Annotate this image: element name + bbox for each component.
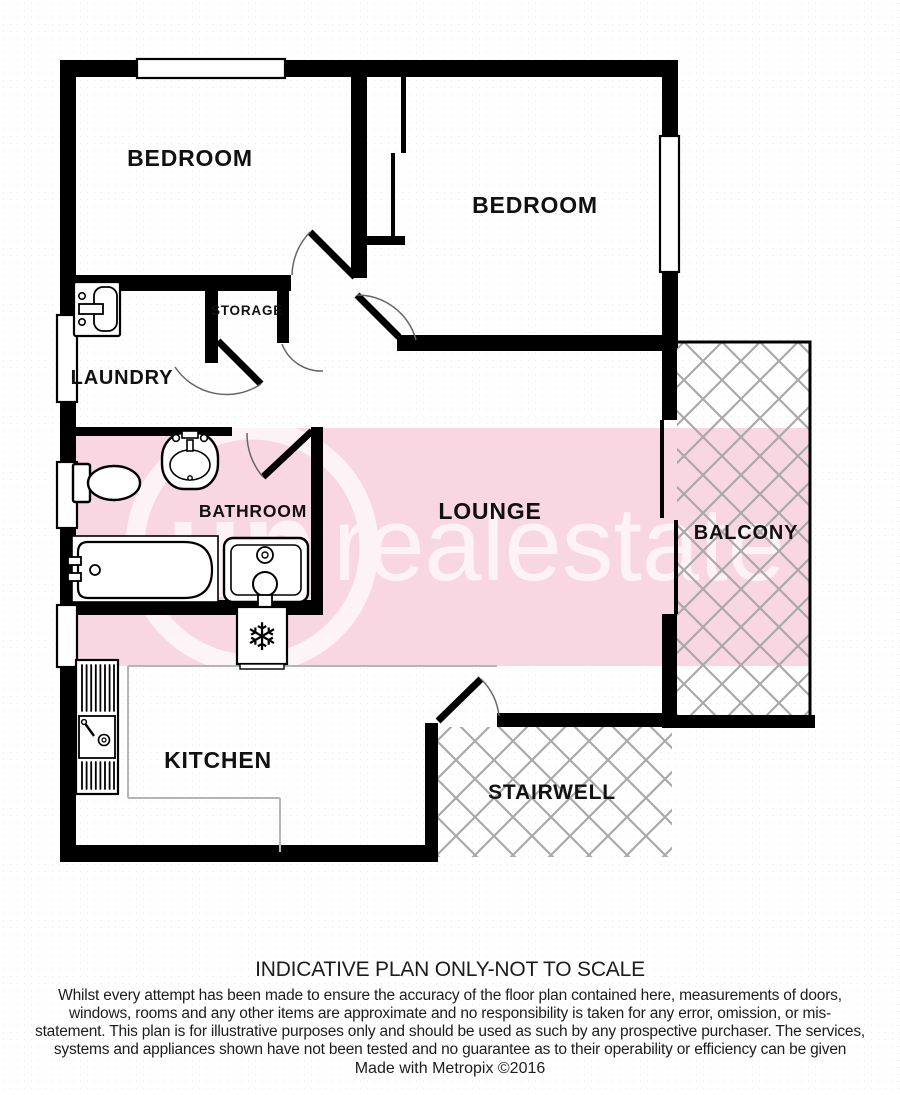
door-arc [282,344,323,371]
wall-segment [60,845,437,862]
metropix-credit: Made with Metropix ©2016 [0,1060,900,1078]
wall-segment [311,427,323,615]
door-leaf-stairwell [438,679,481,721]
label-laundry: LAUNDRY [71,367,174,389]
wall-segment [425,723,438,862]
label-bedroom-left: BEDROOM [127,145,253,171]
label-storage: STORAGE [211,303,283,318]
window-kitchen [57,605,77,667]
window-bedroom-left [137,59,285,78]
label-bedroom-right: BEDROOM [472,192,598,218]
door-leaf-laundry [218,341,261,384]
kitchen-sink [76,660,118,794]
wall-segment [205,275,218,363]
fixtures [68,282,308,794]
sliding-panel [674,520,678,614]
wall-segment [391,153,395,238]
wall-segment [351,60,367,278]
bathroom-basin [162,431,218,489]
wall-segment [60,667,76,862]
wall-segment [662,272,678,348]
plan-disclaimer-text: Whilst every attempt has been made to en… [35,987,865,1059]
wall-segment [662,60,678,136]
plan-disclaimer-title: INDICATIVE PLAN ONLY-NOT TO SCALE [0,958,900,982]
wall-segment [662,348,677,420]
sliding-panel [660,420,664,518]
wall-segment [357,236,405,245]
wall-segment [497,713,665,727]
floor-plan-svg: un realestate [0,0,900,940]
label-bathroom: BATHROOM [199,501,307,521]
pedestal-basin [224,538,308,608]
door-arc [481,679,499,716]
door-leaf-bedroom-left [310,232,355,277]
fridge-snowflake-icon: ❄ [246,617,278,659]
label-balcony: BALCONY [694,522,799,544]
door-leaf-bedroom-right [357,295,399,337]
floor-plan: un realestate [0,0,900,940]
door-arc [292,232,310,275]
window-bedroom-right [660,136,679,272]
label-kitchen: KITCHEN [164,747,272,773]
toilet [73,464,140,502]
wall-segment [401,74,406,153]
footer: INDICATIVE PLAN ONLY-NOT TO SCALE Whilst… [0,958,900,1078]
wall-segment [397,335,663,351]
label-stairwell: STAIRWELL [488,781,616,804]
label-lounge: LOUNGE [438,498,541,524]
wall-segment [662,715,815,728]
laundry-sink [74,282,120,336]
bathtub [68,536,218,602]
wall-segment [662,614,677,717]
